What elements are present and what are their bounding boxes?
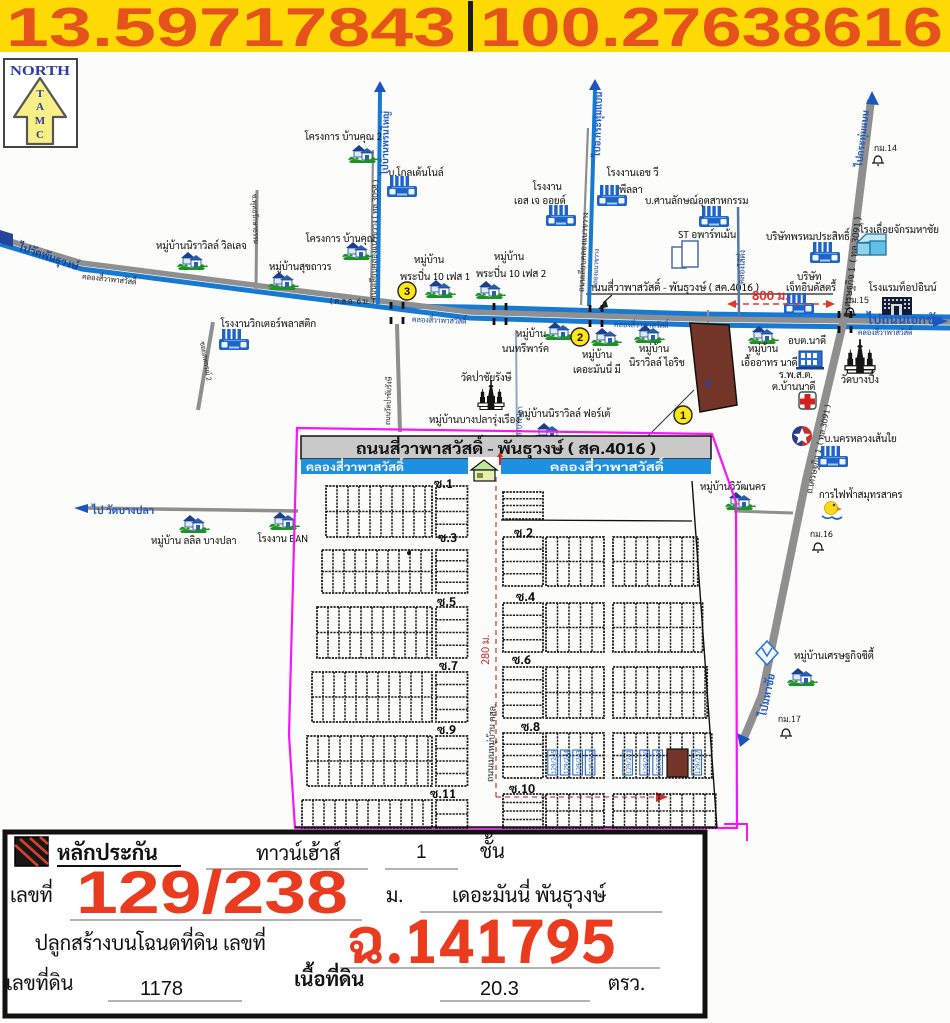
svg-text:1178: 1178 xyxy=(140,978,183,1000)
svg-text:3: 3 xyxy=(404,286,410,298)
svg-text:129/238: 129/238 xyxy=(76,859,348,926)
svg-text:C: C xyxy=(36,129,44,141)
svg-text:M: M xyxy=(35,115,46,127)
svg-text:1: 1 xyxy=(416,842,427,863)
svg-text:NORTH: NORTH xyxy=(10,63,71,78)
svg-text:100.27638616: 100.27638616 xyxy=(480,0,943,58)
svg-text:A: A xyxy=(36,101,44,113)
svg-text:T: T xyxy=(36,88,44,100)
svg-text:1: 1 xyxy=(680,410,686,422)
svg-text:2: 2 xyxy=(577,332,583,344)
svg-text:13.59717843: 13.59717843 xyxy=(6,0,456,58)
svg-text:20.3: 20.3 xyxy=(480,978,519,1000)
